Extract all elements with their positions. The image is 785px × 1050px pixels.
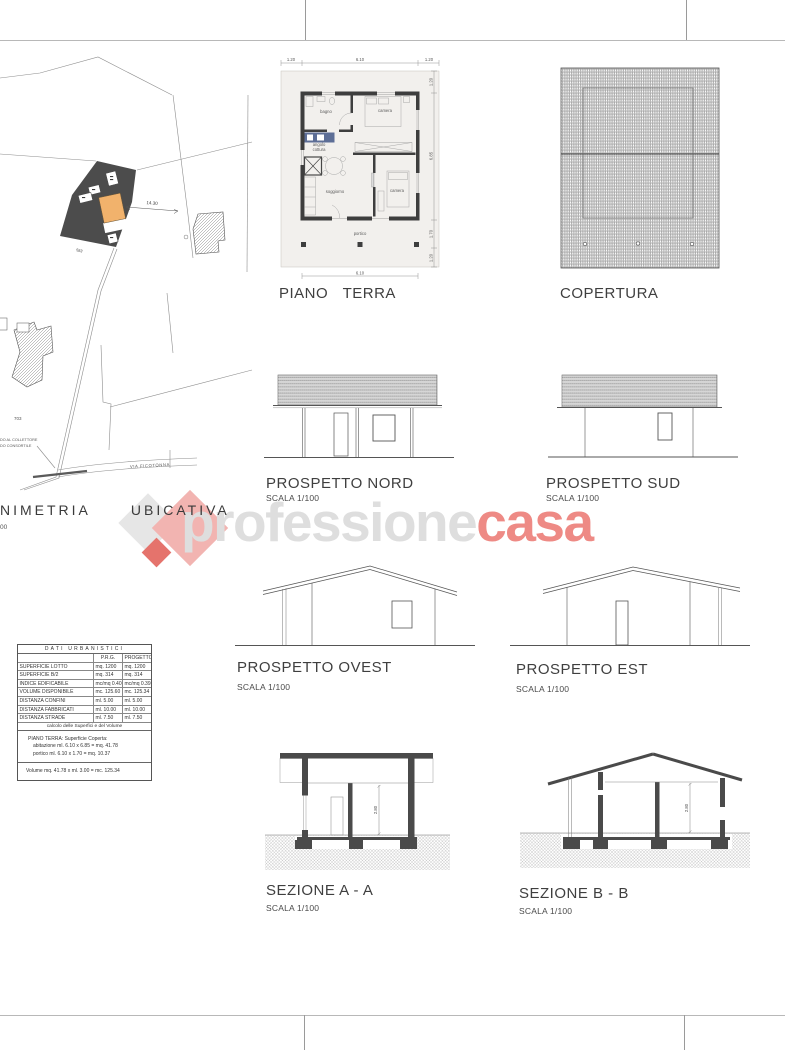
site-plan-drawing: 14.30 583 703 DO AL COLLETTORE DO CONSOR… bbox=[0, 40, 256, 490]
sewer-note-line1: DO AL COLLETTORE bbox=[0, 438, 38, 442]
right-wall bbox=[408, 759, 415, 838]
table-row-label: SUPERFICIE B/2 bbox=[18, 671, 94, 680]
left-wall bbox=[598, 772, 603, 837]
table-row-label: VOLUME DISPONIBILE bbox=[18, 688, 94, 697]
walls-and-posts bbox=[303, 408, 414, 457]
roof-band bbox=[562, 375, 717, 407]
urban-data-table-title: DATI URBANISTICI bbox=[18, 645, 151, 654]
fold-mark bbox=[684, 1015, 685, 1050]
calc-line2: abitazione ml. 6.10 x 6.85 = mq. 41.78 bbox=[28, 743, 151, 750]
elevation-east-title: PROSPETTO EST bbox=[516, 661, 648, 678]
elevation-south-scale: SCALA 1/100 bbox=[546, 493, 599, 503]
door bbox=[334, 413, 348, 456]
height-dimension: 2.80 bbox=[684, 783, 692, 833]
porch-post bbox=[719, 588, 722, 645]
footing bbox=[593, 840, 608, 849]
footing bbox=[563, 840, 580, 849]
footing bbox=[400, 840, 417, 849]
wall-openings bbox=[598, 790, 725, 820]
walls bbox=[312, 583, 435, 645]
urban-data-grid: P.R.G. PROGETTO SUPERFICIE LOTTO mq. 120… bbox=[18, 654, 151, 723]
parcel-boundaries bbox=[0, 57, 252, 490]
dim-bottom: 6.10 bbox=[356, 271, 365, 276]
table-row-prg: ml. 10.00 bbox=[94, 706, 123, 715]
door bbox=[616, 601, 628, 645]
table-row-progetto: mc/mq 0.39 bbox=[123, 680, 151, 689]
floor-plan-drawing: 1.20 6.10 1.20 1.20 6.85 1.70 1.20 6.10 bbox=[277, 55, 447, 295]
dim-top-left: 1.20 bbox=[287, 57, 296, 62]
room-label-bedroom2: camera bbox=[390, 188, 405, 193]
lot-edge-label: 583 bbox=[76, 248, 83, 253]
table-row-label: SUPERFICIE LOTTO bbox=[18, 663, 94, 672]
dim-labels-top: 1.20 6.10 1.20 bbox=[287, 57, 434, 62]
fold-mark bbox=[305, 0, 306, 40]
calc-line3: portico ml. 6.10 x 1.70 = mq. 10.37 bbox=[28, 751, 151, 758]
site-dimension: 14.30 bbox=[126, 200, 178, 213]
section-bb-scale: SCALA 1/100 bbox=[519, 906, 572, 916]
site-plan-title-word2: UBICATIVA bbox=[131, 502, 230, 518]
dim-right-eave-top: 1.20 bbox=[429, 77, 434, 86]
section-aa-drawing: 2.80 bbox=[260, 742, 465, 882]
elevation-north-scale: SCALA 1/100 bbox=[266, 493, 319, 503]
structure bbox=[280, 753, 433, 849]
elevation-west-title: PROSPETTO OVEST bbox=[237, 659, 392, 676]
room-label-bedroom1: camera bbox=[378, 108, 393, 113]
watermark-brand-gray: professione bbox=[181, 491, 476, 553]
partition bbox=[348, 783, 353, 837]
table-row-prg: mq. 1200 bbox=[94, 663, 123, 672]
fold-mark bbox=[304, 1015, 305, 1050]
roof-tiles bbox=[561, 68, 719, 268]
roof-plan-drawing bbox=[557, 60, 725, 275]
watermark-brand-text: professionecasa bbox=[181, 495, 593, 550]
neighbor-building-east bbox=[193, 212, 225, 254]
sheet-bottom-edge bbox=[0, 1015, 785, 1016]
floor-plan-title: PIANO TERRA bbox=[279, 285, 396, 302]
dim-top-center: 6.10 bbox=[356, 57, 365, 62]
table-cell bbox=[18, 654, 94, 663]
site-plan-title-word1: NIMETRIA bbox=[0, 502, 91, 518]
floor-slab bbox=[297, 837, 417, 840]
room-label-living: soggiorno bbox=[326, 189, 345, 194]
height-dimension: 2.80 bbox=[373, 785, 381, 835]
table-row-progetto: mc. 125.34 bbox=[123, 688, 151, 697]
structure bbox=[563, 772, 730, 849]
walls bbox=[585, 408, 693, 457]
elevation-south-title: PROSPETTO SUD bbox=[546, 475, 681, 492]
height-dim-label: 2.80 bbox=[373, 805, 378, 814]
table-row-label: DISTANZA FABBRICATI bbox=[18, 706, 94, 715]
footing bbox=[349, 840, 363, 849]
footing bbox=[711, 840, 728, 849]
left-sill bbox=[302, 830, 308, 837]
footing bbox=[651, 840, 667, 849]
table-row-prg: mc. 125.60 bbox=[94, 688, 123, 697]
lot-fill bbox=[60, 161, 136, 247]
dim-right-porch: 1.70 bbox=[429, 229, 434, 238]
table-row-progetto: ml. 7.50 bbox=[123, 714, 151, 723]
dim-top-right: 1.20 bbox=[425, 57, 434, 62]
roof-slab bbox=[280, 753, 433, 759]
sewer-note-line2: DO CONSORTILE bbox=[0, 444, 32, 448]
table-row-progetto: ml. 5.00 bbox=[123, 697, 151, 706]
volume-line: Volume mq. 41.78 x ml. 3.00 = mc. 125.34 bbox=[18, 763, 151, 780]
elevation-south-drawing bbox=[538, 362, 750, 474]
table-header-prg: P.R.G. bbox=[94, 654, 123, 663]
left-wall bbox=[302, 759, 308, 796]
table-header-progetto: PROGETTO bbox=[123, 654, 151, 663]
height-dim-label: 2.80 bbox=[684, 803, 689, 812]
street-name-label: VIA FICOTONNA bbox=[130, 462, 170, 469]
table-row-label: INDICE EDIFICABILE bbox=[18, 680, 94, 689]
table-row-label: DISTANZA CONFINI bbox=[18, 697, 94, 706]
table-row-prg: ml. 7.50 bbox=[94, 714, 123, 723]
roof-slopes bbox=[548, 754, 742, 784]
table-row-progetto: ml. 10.00 bbox=[123, 706, 151, 715]
window-section bbox=[304, 796, 307, 831]
roof-band bbox=[278, 375, 437, 405]
table-row-label: DISTANZA STRADE bbox=[18, 714, 94, 723]
room-label-bathroom: bagno bbox=[320, 109, 332, 114]
fold-mark bbox=[686, 0, 687, 40]
section-aa-scale: SCALA 1/100 bbox=[266, 903, 319, 913]
walls bbox=[567, 582, 690, 645]
parcel-number-label: 703 bbox=[14, 416, 22, 421]
porch-post bbox=[569, 777, 572, 837]
table-row-progetto: mq. 314 bbox=[123, 671, 151, 680]
dim-right-house: 6.85 bbox=[429, 151, 434, 160]
crawl-space bbox=[561, 834, 732, 849]
table-row-prg: mc/mq 0.40 bbox=[94, 680, 123, 689]
elevation-east-scale: SCALA 1/100 bbox=[516, 684, 569, 694]
dim-right-eave-bottom: 1.20 bbox=[429, 253, 434, 262]
elevation-north-title: PROSPETTO NORD bbox=[266, 475, 414, 492]
footing bbox=[295, 840, 312, 849]
room-label-kitchenette2: cottura bbox=[313, 147, 326, 152]
roof-lines bbox=[263, 566, 457, 596]
section-aa-title: SEZIONE A - A bbox=[266, 882, 373, 899]
table-row-prg: ml. 5.00 bbox=[94, 697, 123, 706]
roof-lines bbox=[543, 567, 740, 594]
room-label-porch: portico bbox=[354, 231, 367, 236]
sheet-top-edge bbox=[0, 40, 785, 41]
elevation-east-drawing bbox=[510, 558, 752, 676]
well-mark-icon bbox=[184, 235, 188, 239]
partition bbox=[655, 782, 660, 837]
calc-block: PIANO TERRA: Superficie Coperta: abitazi… bbox=[18, 731, 151, 763]
window bbox=[392, 601, 412, 628]
door-section bbox=[331, 797, 343, 835]
site-plan-scale-fragment: 00 bbox=[0, 524, 7, 531]
floor-slab bbox=[563, 837, 730, 840]
section-bb-title: SEZIONE B - B bbox=[519, 885, 629, 902]
table-row-progetto: mq. 1200 bbox=[123, 663, 151, 672]
roof-plan-title: COPERTURA bbox=[560, 285, 658, 302]
site-plan-title: NIMETRIA UBICATIVA bbox=[0, 502, 230, 518]
section-bb-drawing: 2.80 bbox=[516, 740, 756, 892]
porch-post bbox=[283, 588, 287, 645]
window bbox=[658, 413, 672, 440]
elevation-west-scale: SCALA 1/100 bbox=[237, 682, 290, 692]
table-row-prg: mq. 314 bbox=[94, 671, 123, 680]
edge-building bbox=[0, 318, 7, 330]
window bbox=[373, 415, 395, 441]
site-dim-label: 14.30 bbox=[146, 200, 158, 206]
urban-data-table: DATI URBANISTICI P.R.G. PROGETTO SUPERFI… bbox=[17, 644, 152, 781]
calc-header: calcolo delle Superfici e del Volume bbox=[18, 723, 151, 731]
calc-line1: PIANO TERRA: Superficie Coperta: bbox=[28, 736, 151, 743]
elevation-north-drawing bbox=[256, 362, 468, 474]
neighbor-annex bbox=[17, 323, 29, 332]
